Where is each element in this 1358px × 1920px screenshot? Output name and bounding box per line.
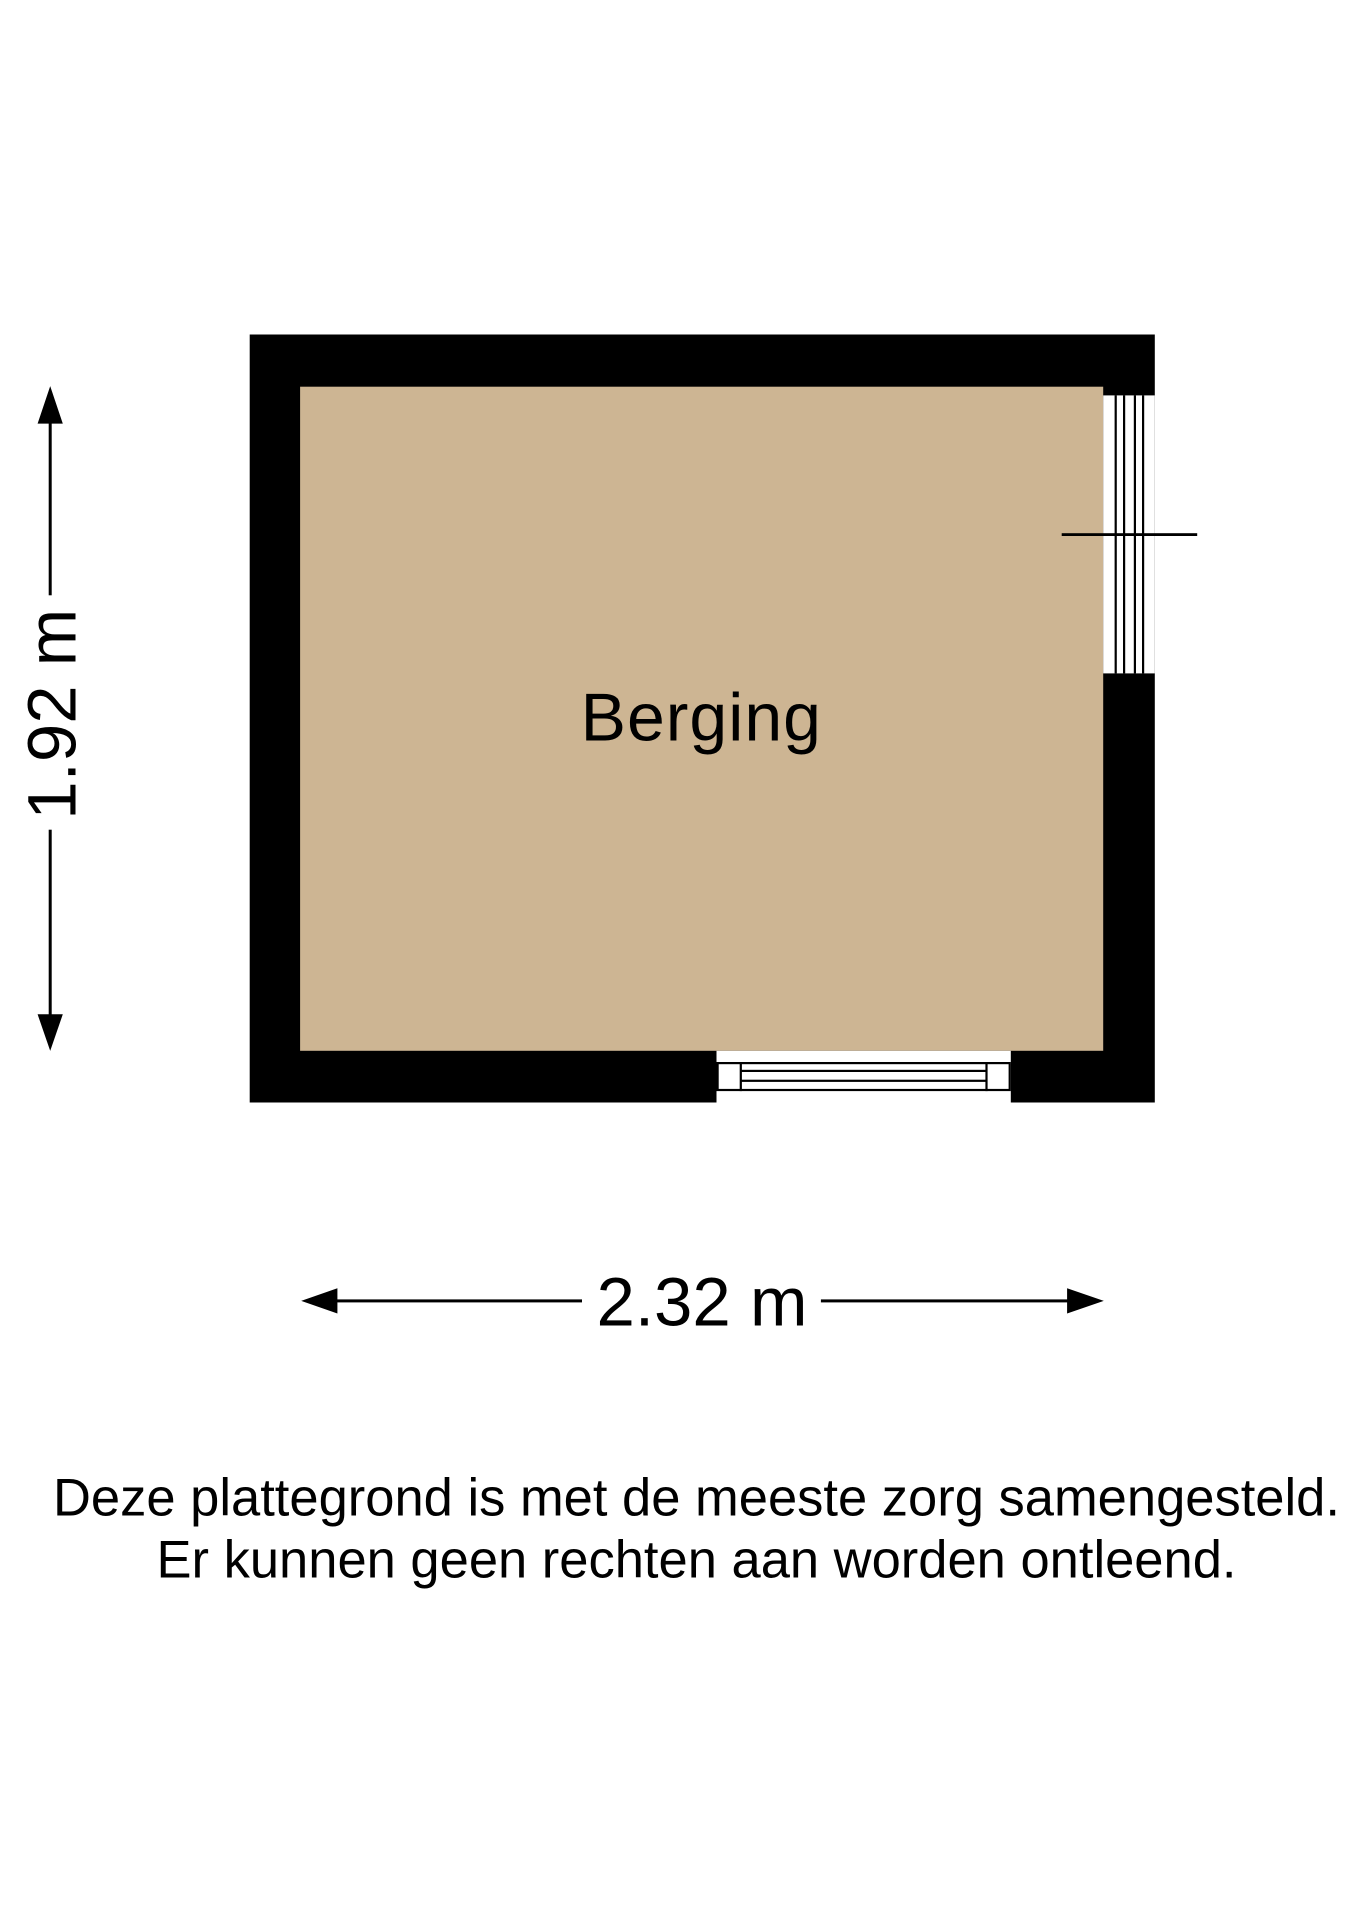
svg-text:Er kunnen geen rechten aan wor: Er kunnen geen rechten aan worden ontlee… bbox=[157, 1530, 1237, 1589]
svg-text:1.92 m: 1.92 m bbox=[14, 609, 91, 820]
svg-text:2.32 m: 2.32 m bbox=[597, 1264, 808, 1341]
svg-text:Berging: Berging bbox=[581, 679, 822, 755]
svg-text:Deze plattegrond is met de mee: Deze plattegrond is met de meeste zorg s… bbox=[53, 1469, 1340, 1528]
